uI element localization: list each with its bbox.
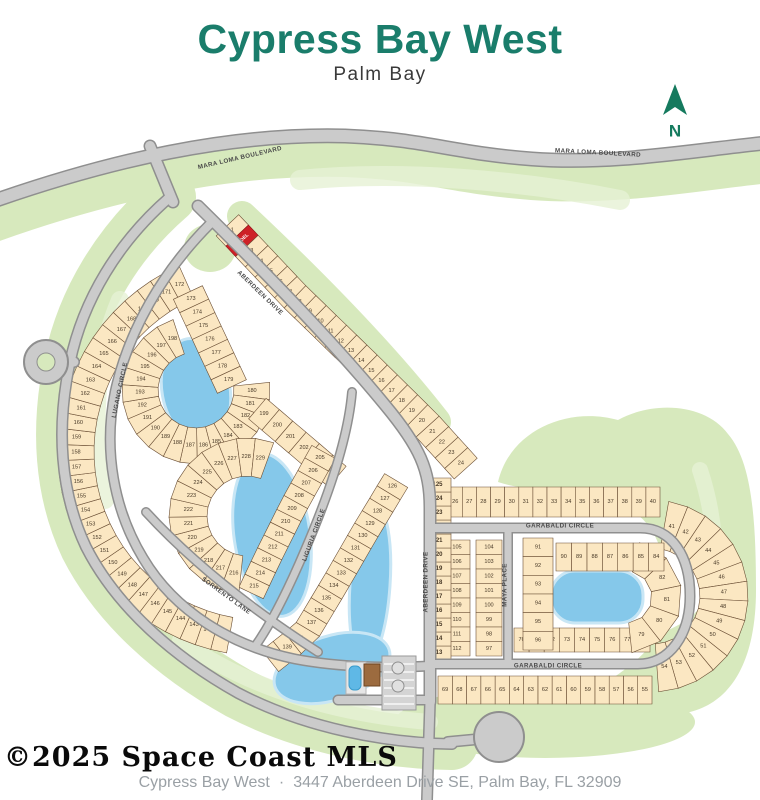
lot-number: 62 xyxy=(542,687,548,693)
lot-number: 68 xyxy=(456,687,462,693)
lot-number: 84 xyxy=(653,554,659,560)
lot-number: 155 xyxy=(77,494,86,500)
footer-caption: Cypress Bay West·3447 Aberdeen Drive SE,… xyxy=(0,774,760,792)
street-label-garabaldi-circle: GARABALDI CIRCLE xyxy=(526,523,594,530)
lot-number: 150 xyxy=(108,560,117,566)
lot-number: 198 xyxy=(168,336,177,342)
lot-number: 64 xyxy=(513,687,519,693)
lot-number: 134 xyxy=(329,583,338,589)
lot-number: 130 xyxy=(358,533,367,539)
lot-number: 180 xyxy=(247,388,256,394)
lot-number: 104 xyxy=(484,544,493,550)
lot-number: 30 xyxy=(509,499,515,505)
lot-number: 152 xyxy=(92,535,101,541)
lot-number: 154 xyxy=(81,508,90,514)
lot-number: 76 xyxy=(609,637,615,643)
lot-number: 88 xyxy=(591,554,597,560)
lot-number: 54 xyxy=(661,664,667,670)
lot-number: 200 xyxy=(273,423,282,429)
lot-number: 201 xyxy=(286,434,295,440)
amenity-court xyxy=(392,662,404,674)
watermark: ©2025 Space Coast MLS xyxy=(4,742,398,773)
lot-number: 67 xyxy=(471,687,477,693)
lot-number: 47 xyxy=(721,589,727,595)
lot-number: 36 xyxy=(593,499,599,505)
lot-number: 137 xyxy=(307,620,316,626)
lot-number: 86 xyxy=(622,554,628,560)
lot-number: 16 xyxy=(378,378,384,384)
lot-number: 202 xyxy=(299,445,308,451)
lot-number: 15 xyxy=(368,368,374,374)
lot-number: 66 xyxy=(485,687,491,693)
lot-number: 42 xyxy=(682,529,688,535)
lot-number: 65 xyxy=(499,687,505,693)
lot-number: 220 xyxy=(188,535,197,541)
lot-strip-island-left: 919293949596 xyxy=(523,538,553,650)
lot-number: 49 xyxy=(716,619,722,625)
lot-number: 126 xyxy=(388,484,397,490)
lot-number: 58 xyxy=(599,687,605,693)
lot-number: 52 xyxy=(689,653,695,659)
lot-number: 96 xyxy=(535,638,541,644)
lot-number: 217 xyxy=(216,566,225,572)
lot-number: 45 xyxy=(713,561,719,567)
lot-number: 108 xyxy=(452,588,461,594)
lot-number: 166 xyxy=(108,339,117,345)
lot-number: 44 xyxy=(705,548,711,554)
lot-number: 90 xyxy=(561,554,567,560)
lot-number: 31 xyxy=(523,499,529,505)
lot-number: 111 xyxy=(453,631,462,637)
lot-number: 109 xyxy=(452,602,461,608)
lot-number: 33 xyxy=(551,499,557,505)
lot-number: 211 xyxy=(275,532,284,538)
lot-number: 177 xyxy=(212,350,221,356)
lot-number: 32 xyxy=(537,499,543,505)
lot-number: 151 xyxy=(100,548,109,554)
lot-number: 63 xyxy=(528,687,534,693)
compass: N xyxy=(663,84,687,141)
lot-number: 223 xyxy=(187,493,196,499)
lot-number: 56 xyxy=(627,687,633,693)
lot-number: 189 xyxy=(161,434,170,440)
lot-number: 97 xyxy=(486,646,492,652)
lot-number: 156 xyxy=(74,479,83,485)
lot-number: 146 xyxy=(150,601,159,607)
lot-strip-garabaldi-south: 555657585960616263646566676869 xyxy=(438,676,652,704)
lot-number: 129 xyxy=(365,521,374,527)
lot-number: 24 xyxy=(458,460,464,466)
lot-number: 18 xyxy=(399,398,405,404)
lot-number: 35 xyxy=(579,499,585,505)
lot-number: 43 xyxy=(695,538,701,544)
lot-number: 89 xyxy=(576,554,582,560)
page-title: Cypress Bay West xyxy=(0,16,760,63)
lot-number: 219 xyxy=(194,547,203,553)
lot-number: 227 xyxy=(227,456,236,462)
lot-number: 20 xyxy=(419,418,425,424)
lot-number: 181 xyxy=(246,401,255,407)
lot-number: 136 xyxy=(314,608,323,614)
lot-number: 226 xyxy=(214,461,223,467)
lot-number: 21 xyxy=(429,429,435,435)
lot-number: 99 xyxy=(486,617,492,623)
lot-number: 197 xyxy=(157,343,166,349)
page-subtitle: Palm Bay xyxy=(0,64,760,86)
lot-number: 40 xyxy=(650,499,656,505)
pool xyxy=(349,666,361,690)
lot-number: 102 xyxy=(484,573,493,579)
lot-number: 100 xyxy=(484,602,493,608)
lot-number: 74 xyxy=(579,637,585,643)
lot-number: 167 xyxy=(117,327,126,333)
clubhouse-building xyxy=(364,664,380,686)
lot-number: 159 xyxy=(72,435,81,441)
lot-number: 165 xyxy=(99,351,108,357)
lot-number: 53 xyxy=(676,660,682,666)
cul-de-sac xyxy=(474,712,524,762)
lot-number: 190 xyxy=(151,426,160,432)
lot-number: 38 xyxy=(622,499,628,505)
lot-number: 188 xyxy=(173,440,182,446)
lot-number: 128 xyxy=(373,508,382,514)
lot-number: 187 xyxy=(186,443,195,449)
lot-number: 107 xyxy=(452,573,461,579)
lot-number: 132 xyxy=(344,558,353,564)
lot-number: 158 xyxy=(71,450,80,456)
lot-number: 183 xyxy=(233,424,242,430)
lot-number: 39 xyxy=(636,499,642,505)
lot-number: 98 xyxy=(486,631,492,637)
amenity-court xyxy=(392,680,404,692)
lot-number: 27 xyxy=(466,499,472,505)
lot-number: 110 xyxy=(453,617,462,623)
lot-number: 160 xyxy=(74,420,83,426)
lot-number: 173 xyxy=(186,296,195,302)
lot-number: 163 xyxy=(86,377,95,383)
lot-number: 101 xyxy=(484,588,493,594)
lot-number: 164 xyxy=(92,364,101,370)
lot-number: 195 xyxy=(140,364,149,370)
lot-number: 82 xyxy=(659,575,665,581)
lot-number: 106 xyxy=(452,559,461,565)
lot-number: 50 xyxy=(709,632,715,638)
lot-number: 213 xyxy=(262,558,271,564)
lot-number: 59 xyxy=(585,687,591,693)
lot-number: 194 xyxy=(136,376,145,382)
lot-number: 91 xyxy=(535,544,541,550)
lot-number: 85 xyxy=(638,554,644,560)
lot-number: 95 xyxy=(535,619,541,625)
lot-number: 149 xyxy=(117,572,126,578)
lot-number: 206 xyxy=(308,468,317,474)
lot-number: 224 xyxy=(193,480,202,486)
street-label-maya-place: MAYA PLACE xyxy=(502,563,509,607)
lot-number: 191 xyxy=(143,415,152,421)
lot-number: 184 xyxy=(223,433,232,439)
lot-number: 228 xyxy=(242,454,251,460)
lot-number: 105 xyxy=(452,544,461,550)
lot-number: 222 xyxy=(184,507,193,513)
lot-number: 28 xyxy=(480,499,486,505)
lot-number: 94 xyxy=(535,600,541,606)
lot-number: 147 xyxy=(139,592,148,598)
north-arrow-icon xyxy=(663,84,687,115)
lot-number: 209 xyxy=(287,506,296,512)
footer-separator: · xyxy=(279,774,284,791)
lot-number: 61 xyxy=(556,687,562,693)
lot-number: 29 xyxy=(494,499,500,505)
site-plan-map: 1MODEL3456789101112131415161718192021222… xyxy=(0,0,760,800)
lot-strip-island-top: 84858687888990 xyxy=(556,543,664,571)
lot-number: 34 xyxy=(565,499,571,505)
lot-number: 81 xyxy=(664,597,670,603)
lot-number: 57 xyxy=(613,687,619,693)
lot-number: 144 xyxy=(176,616,185,622)
footer-name: Cypress Bay West xyxy=(139,774,270,791)
lot-number: 93 xyxy=(535,582,541,588)
lot-number: 196 xyxy=(147,353,156,359)
lot-number: 41 xyxy=(669,524,675,530)
lot-number: 14 xyxy=(358,358,364,364)
street-label-garabaldi-circle: GARABALDI CIRCLE xyxy=(514,663,582,670)
page: { "title": "Cypress Bay West", "subtitle… xyxy=(0,0,760,800)
lot-number: 193 xyxy=(135,390,144,396)
lot-number: 207 xyxy=(302,480,311,486)
lot-number: 55 xyxy=(642,687,648,693)
lot-number: 145 xyxy=(163,609,172,615)
lot-number: 214 xyxy=(256,571,265,577)
lot-number: 92 xyxy=(535,563,541,569)
lot-number: 176 xyxy=(205,337,214,343)
lot-number: 162 xyxy=(81,391,90,397)
lot-number: 60 xyxy=(570,687,576,693)
lot-number: 17 xyxy=(388,388,394,394)
lot-number: 153 xyxy=(86,522,95,528)
lot-number: 75 xyxy=(594,637,600,643)
lot-number: 174 xyxy=(193,310,202,316)
lot-number: 178 xyxy=(218,363,227,369)
lot-number: 175 xyxy=(199,323,208,329)
lot-number: 148 xyxy=(128,582,137,588)
lot-number: 80 xyxy=(656,618,662,624)
lot-number: 51 xyxy=(700,644,706,650)
street-label-aberdeen-drive: ABERDEEN DRIVE xyxy=(423,552,430,613)
lot-number: 179 xyxy=(224,377,233,383)
lot-number: 221 xyxy=(184,521,193,527)
lot-number: 48 xyxy=(720,604,726,610)
lot-number: 215 xyxy=(249,584,258,590)
lot-number: 77 xyxy=(624,637,630,643)
lot-strip-garabaldi-north: 25262728293031323334353637383940 xyxy=(434,487,660,517)
lot-number: 205 xyxy=(315,455,324,461)
lot-number: 139 xyxy=(283,645,292,651)
roundabout-island xyxy=(37,353,55,371)
lot-number: 225 xyxy=(203,469,212,475)
lot-number: 23 xyxy=(448,450,454,456)
lot-number: 229 xyxy=(256,456,265,462)
lot-number: 131 xyxy=(351,545,360,551)
lot-number: 161 xyxy=(77,406,86,412)
lot-number: 69 xyxy=(442,687,448,693)
lot-strip-maya-east-col: 104103102101100999897 xyxy=(476,540,502,656)
lot-number: 172 xyxy=(175,282,184,288)
lot-number: 22 xyxy=(439,439,445,445)
lot-number: 199 xyxy=(259,411,268,417)
lot-number: 216 xyxy=(229,571,238,577)
lot-number: 192 xyxy=(138,403,147,409)
lot-number: 133 xyxy=(337,570,346,576)
lot-number: 103 xyxy=(484,559,493,565)
footer-address: 3447 Aberdeen Drive SE, Palm Bay, FL 329… xyxy=(293,774,621,791)
lot-number: 186 xyxy=(199,443,208,449)
compass-label: N xyxy=(669,122,681,141)
lot-number: 79 xyxy=(638,632,644,638)
lot-number: 157 xyxy=(72,464,81,470)
lot-number: 46 xyxy=(718,575,724,581)
lake xyxy=(551,571,643,623)
lot-number: 112 xyxy=(453,646,462,652)
lot-number: 210 xyxy=(281,519,290,525)
lot-number: 127 xyxy=(380,496,389,502)
lot-number: 208 xyxy=(295,493,304,499)
lot-number: 73 xyxy=(564,637,570,643)
lot-number: 212 xyxy=(268,544,277,550)
lot-number: 19 xyxy=(409,408,415,414)
lot-number: 87 xyxy=(607,554,613,560)
lot-number: 37 xyxy=(607,499,613,505)
lot-number: 26 xyxy=(452,499,458,505)
lot-number: 135 xyxy=(322,596,331,602)
